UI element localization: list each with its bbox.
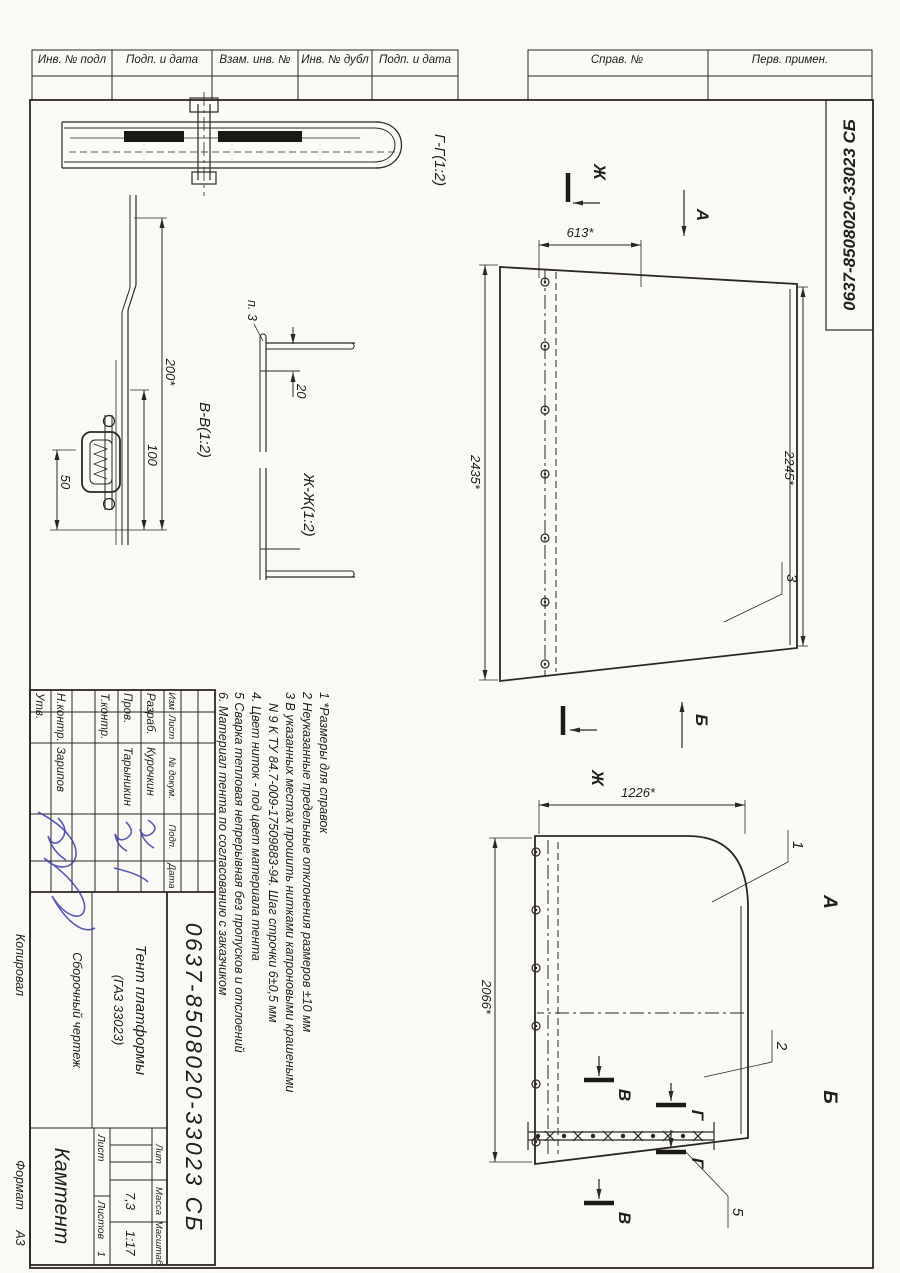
tb-product-name-2: (ГАЗ 33023) (111, 975, 126, 1046)
technical-notes: 1 *Размеры для справок 2 Неуказанные пре… (216, 691, 331, 1092)
dim-20: 20 (294, 383, 309, 399)
signature-scribbles (38, 812, 155, 930)
tb-header-docno: № докум. (166, 757, 177, 799)
letter-v-2: В (615, 1212, 634, 1224)
dim-100: 100 (145, 444, 160, 466)
tb-role-prov: Пров. (121, 693, 133, 723)
tb-header-list: Лист (166, 714, 177, 740)
tb-product-name-1: Тент платформы (132, 945, 149, 1075)
tb-mass-label: Масса (153, 1187, 164, 1215)
rear-panel-view (479, 173, 808, 748)
section-v-markers (584, 1056, 614, 1203)
letter-g-2: Г (688, 1158, 707, 1170)
buckle-detail (82, 415, 120, 510)
stamp-sprav-no: Справ. № (591, 54, 644, 66)
tb-sheets-label: Листов (95, 1200, 107, 1240)
tb-mass-value: 7,3 (123, 1192, 138, 1211)
gost-a3-sheet: 0637-8508020-33023 СБ Перв. примен. Спра… (0, 0, 900, 1273)
footer-kopiroval: Копировал (13, 934, 27, 996)
callout-3: 3 (783, 574, 800, 583)
dim-2245: 2245* (782, 450, 797, 486)
note-line: 5 Сварка тепловая непрерывная без пропус… (232, 692, 246, 1053)
tb-name-nkontr: Зарипов (54, 747, 66, 792)
tb-lit-label: Лит (153, 1143, 164, 1164)
tb-role-utv: Утв. (33, 692, 45, 719)
corner-doc-number: 0637-8508020-33023 СБ (840, 119, 859, 311)
note-line: 6. Материал тента по согласованию с зака… (216, 692, 230, 996)
grommets-rear (541, 278, 549, 668)
tb-company: Камтент (50, 1148, 73, 1245)
note-line: N 9 К ТУ 84.7-009-17509883-94. Шаг строч… (266, 703, 280, 1023)
letter-v-1: В (615, 1089, 634, 1101)
side-panel-view (489, 800, 788, 1228)
tb-sheet-label: Лист (95, 1133, 107, 1161)
tb-header-izm: Изм (166, 692, 177, 710)
stamp-perv-primen: Перв. примен. (752, 54, 828, 66)
stamp-inv-podl: Инв. № подл (38, 54, 107, 66)
label-section-gg: Г-Г(1:2) (431, 134, 448, 186)
dim-613: 613* (567, 225, 595, 240)
letter-g-1: Г (688, 1110, 707, 1122)
note-line: 4. Цвет ниток - под цвет материала тента (249, 692, 263, 961)
section-jj-detail (254, 324, 355, 580)
stamp-podp-data-1: Подп. и дата (379, 54, 451, 66)
callout-2: 2 (773, 1041, 790, 1051)
letter-j-bottom: Ж (588, 769, 607, 787)
tb-scale-value: 1:17 (123, 1230, 138, 1256)
dim-1226: 1226* (621, 785, 656, 800)
callout-1: 1 (789, 841, 806, 849)
scanned-drawing-sheet: 0637-8508020-33023 СБ Перв. примен. Спра… (0, 0, 900, 1273)
label-view-b: Б (819, 1090, 840, 1103)
note-line: 3 В указанных местах прошить нитками кап… (283, 692, 297, 1092)
section-vv-detail (50, 195, 167, 545)
drawing-linework: 0637-8508020-33023 СБ Перв. примен. Спра… (0, 0, 900, 1273)
tb-name-prov: Тарыникин (121, 747, 133, 807)
tb-header-podp: Подп. (166, 824, 177, 849)
label-section-jj: Ж-Ж(1:2) (300, 472, 317, 536)
dim-2435: 2435* (468, 454, 483, 490)
tb-scale-label: Масштаб (153, 1221, 164, 1266)
footer-format-label: Формат (13, 1160, 27, 1210)
note-line: 1 *Размеры для справок (317, 692, 331, 834)
tb-role-nkontr: Н.контр. (54, 693, 66, 742)
tb-sheets-value: 1 (95, 1251, 107, 1257)
note-line: 2 Неуказанные предельные отклонения разм… (300, 691, 314, 1033)
section-g-markers (656, 1083, 686, 1152)
label-view-a: А (819, 894, 840, 909)
stamp-inv-dubl: Инв. № дубл (301, 54, 369, 66)
callout-5: 5 (729, 1208, 746, 1217)
pos-ref-p3: п. 3 (245, 300, 259, 321)
dim-200: 200* (163, 358, 178, 387)
stamp-podp-data-2: Подп. и дата (126, 54, 198, 66)
tb-doc-type: Сборочный чертеж (70, 952, 84, 1069)
dim-50: 50 (58, 475, 73, 490)
sheet-frame (30, 100, 873, 1268)
dim-2066: 2066* (479, 979, 494, 1015)
letter-b-arrow: Б (692, 714, 711, 726)
footer-format-value: А3 (13, 1229, 27, 1245)
tb-header-data: Дата (166, 862, 177, 888)
bolt-fastener (190, 92, 218, 196)
label-section-vv: В-В(1:2) (196, 402, 213, 458)
section-j-markers (563, 173, 600, 735)
letter-j-top: Ж (590, 163, 609, 181)
grommets-side (532, 848, 540, 1146)
tb-doc-number: 0637-8508020-33023 СБ (181, 923, 207, 1233)
letter-a-arrow: А (693, 208, 712, 221)
tb-role-tkontr: Т.контр. (98, 693, 110, 739)
tb-role-razrab: Разраб. (144, 693, 156, 735)
tb-name-razrab: Курочкин (144, 747, 156, 796)
section-gg-detail (62, 92, 402, 196)
stamp-vzam-inv: Взам. инв. № (219, 54, 291, 66)
